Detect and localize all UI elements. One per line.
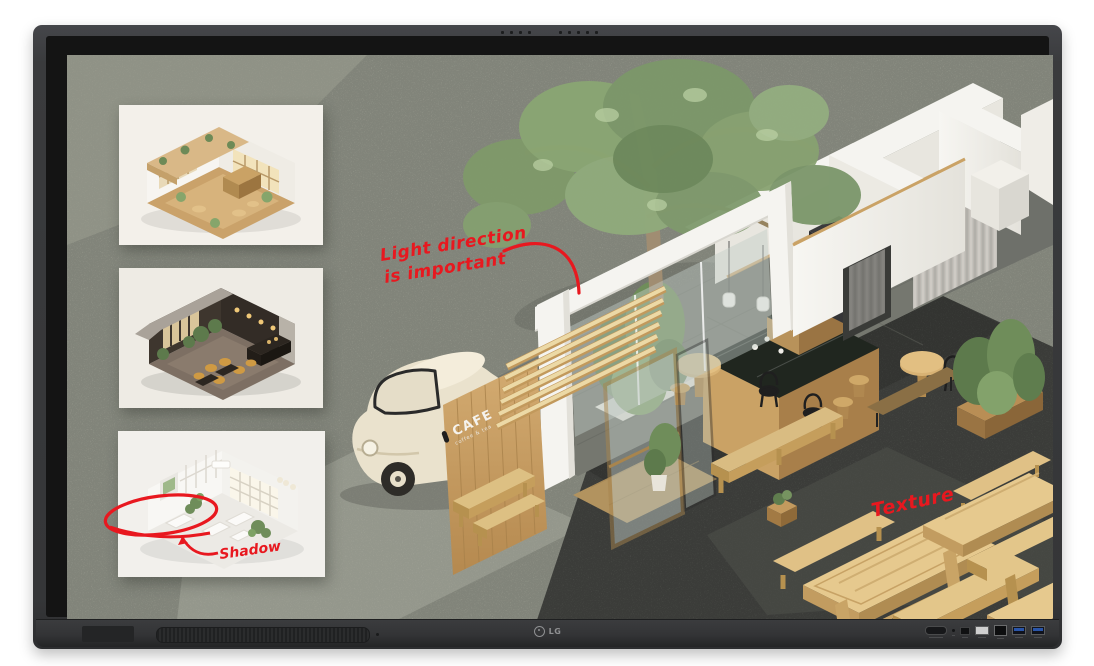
power-button[interactable] — [925, 626, 947, 635]
usb3-port-2 — [1031, 626, 1045, 635]
screen-inner-frame: CAFE coffee & tea — [46, 36, 1049, 617]
port-cluster — [925, 625, 1045, 636]
display-device-frame: CAFE coffee & tea — [33, 25, 1062, 649]
product-photo-canvas: { "device": { "brand_logo": "LG", "mic_d… — [0, 0, 1094, 666]
lg-circle-icon — [534, 626, 545, 637]
whiteboard-canvas[interactable]: CAFE coffee & tea — [67, 55, 1053, 620]
usb2-port — [975, 626, 989, 635]
status-led-2 — [952, 629, 955, 632]
white-cabinet — [971, 160, 1029, 231]
device-chin: LG — [36, 619, 1059, 647]
touch-usb-port — [994, 625, 1007, 636]
usb3-port-1 — [1012, 626, 1026, 635]
reference-image-dark-lounge[interactable] — [119, 268, 323, 408]
lg-logo: LG — [36, 626, 1059, 637]
av-port — [960, 627, 970, 635]
lg-logo-text: LG — [549, 627, 562, 636]
reference-image-white-minimal-cafe[interactable]: Shadow — [118, 431, 325, 577]
reference-image-warm-cafe[interactable] — [119, 105, 323, 245]
mic-array-icon — [501, 31, 598, 34]
